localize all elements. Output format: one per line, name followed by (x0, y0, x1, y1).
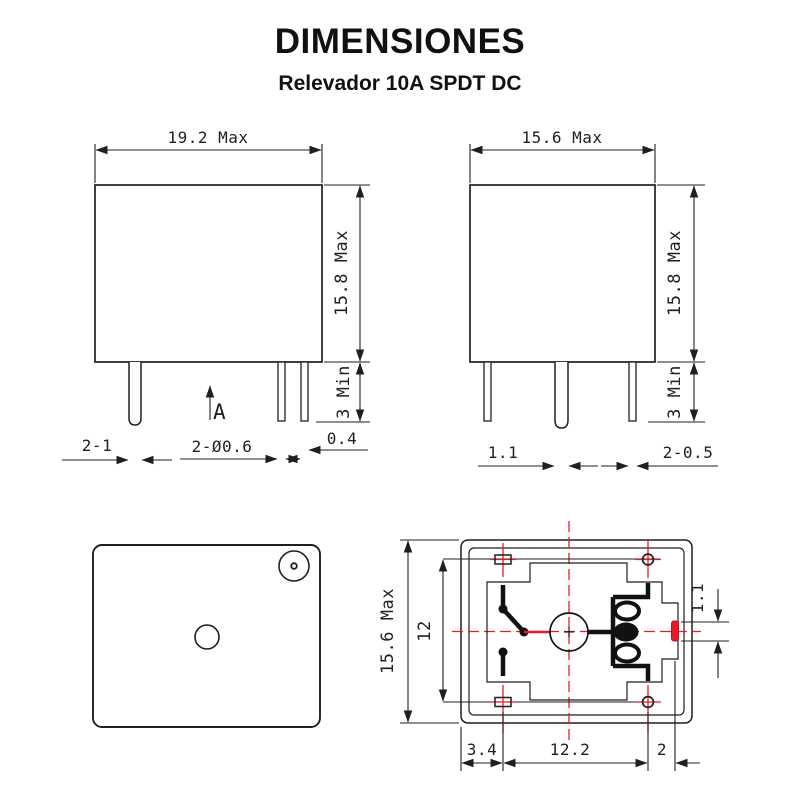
pin-coil-right (672, 621, 679, 641)
front-pin-length-label: 3 Min (334, 365, 354, 419)
side-pin-middle (555, 362, 568, 428)
bottom-pin-column-spacing-label: 12.2 (550, 740, 591, 759)
bottom-view: 15.6 Max 12 1.1 3.4 12.2 2 (378, 521, 729, 771)
bottom-pin-row-spacing-label: 12 (415, 620, 435, 641)
bottom-coil-pin-width-label: 1.1 (688, 583, 707, 613)
side-pin-pair-thickness-label: 2-0.5 (663, 443, 714, 462)
top-view (93, 545, 320, 727)
side-pin-length-label: 3 Min (665, 365, 685, 419)
bottom-coil-pin-offset-label: 2 (657, 740, 667, 759)
front-body (95, 185, 322, 362)
section-label: A (213, 400, 226, 424)
side-height-label: 15.8 Max (665, 230, 685, 316)
bottom-height-label: 15.6 Max (378, 588, 398, 674)
front-pin-left (129, 362, 141, 425)
front-height-label: 15.8 Max (332, 230, 352, 316)
bottom-outer-case (461, 540, 692, 723)
dimension-drawing: 19.2 Max 15.8 Max A 3 Min 2-1 (0, 0, 800, 800)
front-view: 19.2 Max 15.8 Max A 3 Min 2-1 (62, 128, 370, 460)
page: DIMENSIONES Relevador 10A SPDT DC 19.2 M… (0, 0, 800, 800)
side-pin-right (629, 362, 636, 421)
side-body (470, 185, 655, 362)
side-width-label: 15.6 Max (521, 128, 602, 147)
front-pin-thickness-label: 0.4 (327, 429, 357, 448)
side-pin-left (484, 362, 491, 421)
front-pin-right-2 (301, 362, 308, 421)
front-width-label: 19.2 Max (167, 128, 248, 147)
front-pin-diameter-label: 2-Ø0.6 (192, 437, 253, 456)
top-body (93, 545, 320, 727)
front-pin-right-1 (278, 362, 285, 421)
side-pin-width-label: 1.1 (488, 443, 518, 462)
side-view: 15.6 Max 15.8 Max 3 Min 1.1 2-0.5 (470, 128, 718, 466)
front-pin-pair-label: 2-1 (82, 436, 112, 455)
bottom-edge-offset-label: 3.4 (467, 740, 497, 759)
